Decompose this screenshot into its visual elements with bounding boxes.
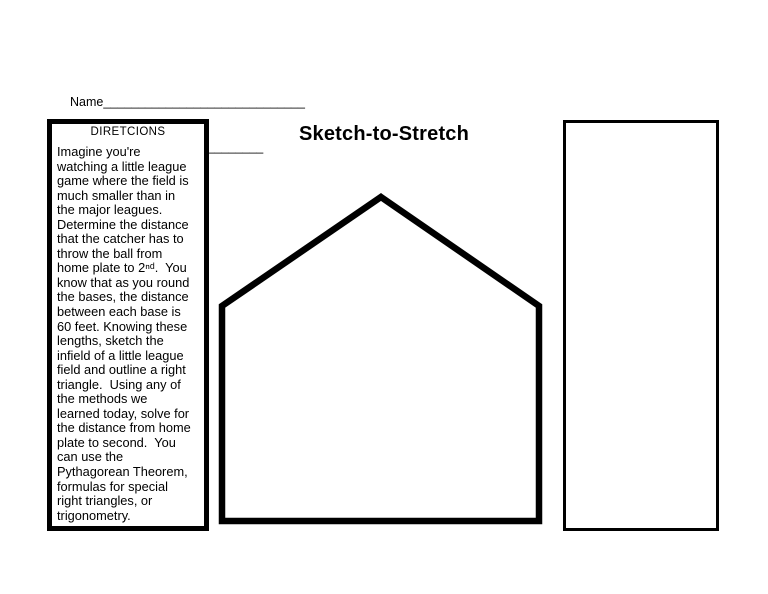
directions-text-line: the major leagues. <box>57 203 202 218</box>
directions-text-line: trigonometry. <box>57 509 202 524</box>
directions-text-line: 60 feet. Knowing these <box>57 320 202 335</box>
name-fill-line[interactable]: _____________________________ <box>103 95 305 109</box>
directions-body: Imagine you'rewatching a little leaguega… <box>52 145 204 523</box>
name-row: Name_____________________________ <box>70 95 305 110</box>
home-plate-pentagon-icon[interactable] <box>222 197 539 521</box>
home-plate-sketch-area[interactable] <box>200 175 565 550</box>
directions-text-line: that the catcher has to <box>57 232 202 247</box>
directions-text-line: Determine the distance <box>57 218 202 233</box>
directions-text-line: learned today, solve for <box>57 407 202 422</box>
directions-text-line: game where the field is <box>57 174 202 189</box>
directions-text-line: plate to second. You <box>57 436 202 451</box>
directions-text-line: home plate to 2ⁿᵈ. You <box>57 261 202 276</box>
directions-box: DIRETCIONS Imagine you'rewatching a litt… <box>47 119 209 531</box>
directions-text-line: lengths, sketch the <box>57 334 202 349</box>
directions-text-line: Pythagorean Theorem, <box>57 465 202 480</box>
directions-text-line: know that as you round <box>57 276 202 291</box>
directions-text-line: formulas for special <box>57 480 202 495</box>
directions-text-line: field and outline a right <box>57 363 202 378</box>
directions-text-line: infield of a little league <box>57 349 202 364</box>
directions-text-line: triangle. Using any of <box>57 378 202 393</box>
directions-text-line: much smaller than in <box>57 189 202 204</box>
directions-text-line: right triangles, or <box>57 494 202 509</box>
directions-heading: DIRETCIONS <box>52 126 204 138</box>
worksheet-page: Name_____________________________ Date__… <box>0 0 768 594</box>
directions-text-line: can use the <box>57 450 202 465</box>
directions-text-line: between each base is <box>57 305 202 320</box>
directions-text-line: the distance from home <box>57 421 202 436</box>
name-label: Name <box>70 95 103 109</box>
directions-text-line: watching a little league <box>57 160 202 175</box>
directions-text-line: Imagine you're <box>57 145 202 160</box>
directions-text-line: throw the ball from <box>57 247 202 262</box>
answer-box[interactable] <box>563 120 719 531</box>
directions-text-line: the bases, the distance <box>57 290 202 305</box>
directions-text-line: the methods we <box>57 392 202 407</box>
